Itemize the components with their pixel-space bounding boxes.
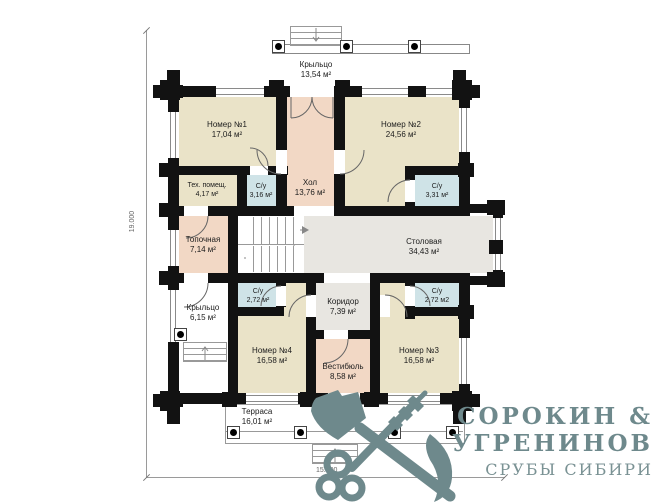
- logo-line-1: СОРОКИН &: [452, 403, 653, 430]
- floor-plan-canvas: Крыльцо13,54 м² Номер №117,04 м² Номер №…: [0, 0, 667, 502]
- company-logo: СОРОКИН & УГРЕНИНОВ СРУБЫ СИБИРИ: [452, 403, 653, 481]
- axe-and-key-icon: [311, 390, 452, 502]
- logo-line-3: СРУБЫ СИБИРИ: [452, 459, 653, 481]
- logo-line-2: УГРЕНИНОВ: [452, 430, 653, 457]
